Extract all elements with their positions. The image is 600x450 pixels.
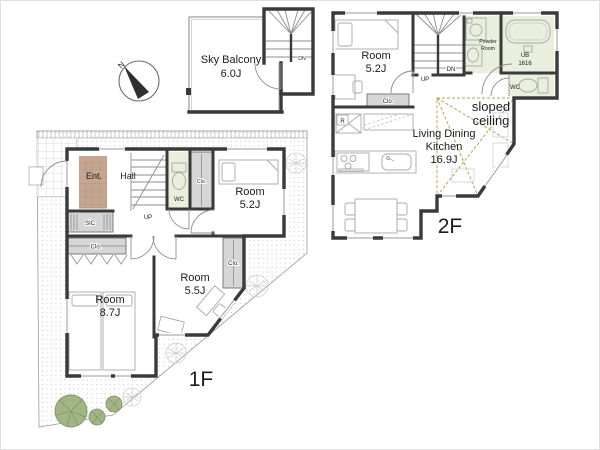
stairs-up-label-2f: UP bbox=[421, 77, 429, 83]
floor2-label: 2F bbox=[438, 215, 463, 238]
refrigerator-label: R bbox=[340, 119, 345, 125]
unit-bath-label-1: UB bbox=[521, 53, 529, 59]
sky-balcony-label: Sky Balcony bbox=[201, 54, 262, 66]
room-2f-label: Room bbox=[361, 50, 390, 62]
balcony-post bbox=[186, 88, 191, 95]
bed bbox=[335, 20, 398, 49]
room-a-label: Room bbox=[235, 186, 264, 198]
wc-label-1f: WC bbox=[174, 197, 185, 203]
sloped-ceiling-label-1: sloped bbox=[472, 99, 510, 114]
sic-label: SIC bbox=[85, 221, 96, 227]
entrance-label: Ent. bbox=[86, 171, 102, 181]
floor-plan: N Sky Balcony 6.0J DN bbox=[1, 1, 600, 450]
bush-large bbox=[55, 395, 87, 427]
porch-step bbox=[29, 167, 43, 185]
compass: N bbox=[116, 60, 159, 101]
closet-bedroom-b-label: Clo. bbox=[91, 245, 102, 251]
room-c-area: 5.5J bbox=[185, 285, 206, 297]
ldk-area: 16.9J bbox=[431, 154, 458, 166]
stairs-up-label-1f: UP bbox=[144, 215, 152, 221]
unit-bath-label-2: 1616 bbox=[518, 61, 532, 67]
room-2f-area: 5.2J bbox=[366, 63, 387, 75]
closet-bedroom-c-label: Clo. bbox=[228, 261, 239, 267]
ldk-label-2: Kitchen bbox=[426, 141, 463, 153]
sketch-tree-4 bbox=[123, 388, 141, 406]
sketch-tree-1 bbox=[286, 153, 306, 173]
room-b-area: 8.7J bbox=[100, 307, 121, 319]
closet-2f-label: Clo. bbox=[383, 99, 394, 105]
sketch-tree-2 bbox=[246, 275, 268, 297]
powder-room-label-2: Room bbox=[481, 46, 495, 52]
sloped-ceiling-label-2: ceiling bbox=[473, 113, 510, 128]
floor1-label: 1F bbox=[189, 368, 214, 391]
bush-small-1 bbox=[89, 409, 105, 425]
closet-hall-label: Clo. bbox=[197, 179, 206, 185]
fence-top bbox=[37, 131, 307, 138]
powder-room-label-1: Powder bbox=[479, 39, 497, 45]
dining-table bbox=[355, 199, 397, 233]
floor-2: Room 5.2J UP DN Clo. R Powder Room UB 16… bbox=[331, 11, 560, 241]
hall-label: Hall bbox=[120, 171, 136, 181]
bed bbox=[219, 160, 278, 184]
sketch-tree-3 bbox=[166, 343, 186, 363]
ldk-label-1: Living Dining bbox=[413, 128, 476, 140]
balcony-stairs-dn-label: DN bbox=[298, 56, 306, 62]
wc-label-2f: WC bbox=[510, 85, 521, 91]
sky-balcony-area: 6.0J bbox=[221, 68, 242, 80]
entrance-area bbox=[79, 156, 107, 208]
stairs-dn-label-2f: DN bbox=[447, 67, 456, 73]
bush-small-2 bbox=[106, 396, 122, 412]
floor-plan-canvas: N Sky Balcony 6.0J DN bbox=[0, 0, 600, 450]
room-b-label: Room bbox=[95, 294, 124, 306]
sky-balcony: Sky Balcony 6.0J DN bbox=[186, 9, 313, 113]
bedroom-a-furniture bbox=[219, 160, 278, 184]
room-c-label: Room bbox=[180, 272, 209, 284]
room-a-area: 5.2J bbox=[240, 199, 261, 211]
